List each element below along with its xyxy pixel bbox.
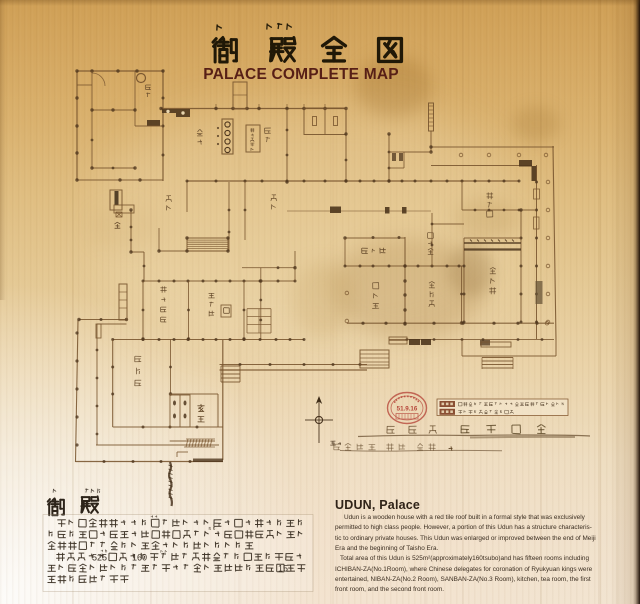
svg-text:15: 15 [278, 564, 288, 574]
svg-text:160: 160 [132, 553, 147, 563]
svg-text:525: 525 [92, 553, 107, 563]
svg-text:51.9.16: 51.9.16 [397, 406, 418, 413]
